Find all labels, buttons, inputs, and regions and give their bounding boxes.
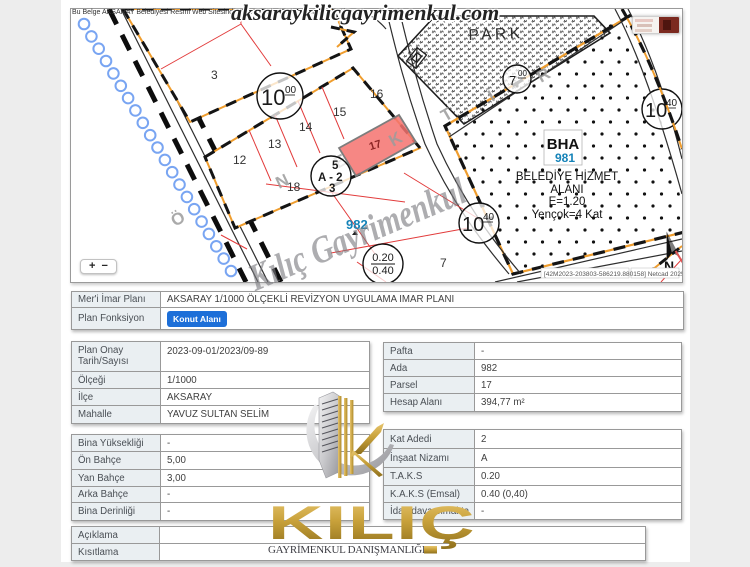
svg-text:14: 14: [299, 120, 313, 134]
svg-text:3: 3: [329, 183, 335, 195]
svg-text:ALANI: ALANI: [550, 184, 583, 196]
svg-text:7: 7: [440, 256, 447, 270]
svg-text:10: 10: [462, 214, 484, 236]
svg-text:GAYRİMENKUL DANIŞMANLIĞI: GAYRİMENKUL DANIŞMANLIĞI: [268, 544, 426, 556]
svg-text:15: 15: [333, 105, 347, 119]
svg-text:0.20: 0.20: [372, 252, 393, 264]
svg-text:BELEDİYE HİZMET: BELEDİYE HİZMET: [516, 170, 618, 183]
svg-text:3: 3: [211, 68, 218, 82]
svg-text:981: 981: [555, 151, 575, 165]
svg-text:40: 40: [483, 212, 495, 223]
svg-text:7: 7: [509, 73, 516, 88]
svg-text:13: 13: [268, 137, 282, 151]
svg-text:00: 00: [285, 85, 297, 96]
svg-text:PARK: PARK: [468, 25, 524, 44]
svg-text:10: 10: [645, 100, 667, 122]
svg-text:[42M2023-203803-586219.880158]: [42M2023-203803-586219.880158] Netcad 20…: [544, 271, 682, 278]
svg-text:5: 5: [332, 160, 339, 172]
svg-text:10: 10: [261, 85, 285, 110]
svg-text:16: 16: [370, 87, 384, 101]
svg-text:KILIÇ: KILIÇ: [268, 497, 476, 550]
svg-text:12: 12: [233, 153, 247, 167]
svg-text:00: 00: [518, 69, 527, 78]
svg-text:0.40: 0.40: [372, 265, 393, 277]
svg-text:Yençok=4 Kat: Yençok=4 Kat: [532, 209, 604, 221]
svg-text:E=1.20: E=1.20: [549, 196, 586, 208]
